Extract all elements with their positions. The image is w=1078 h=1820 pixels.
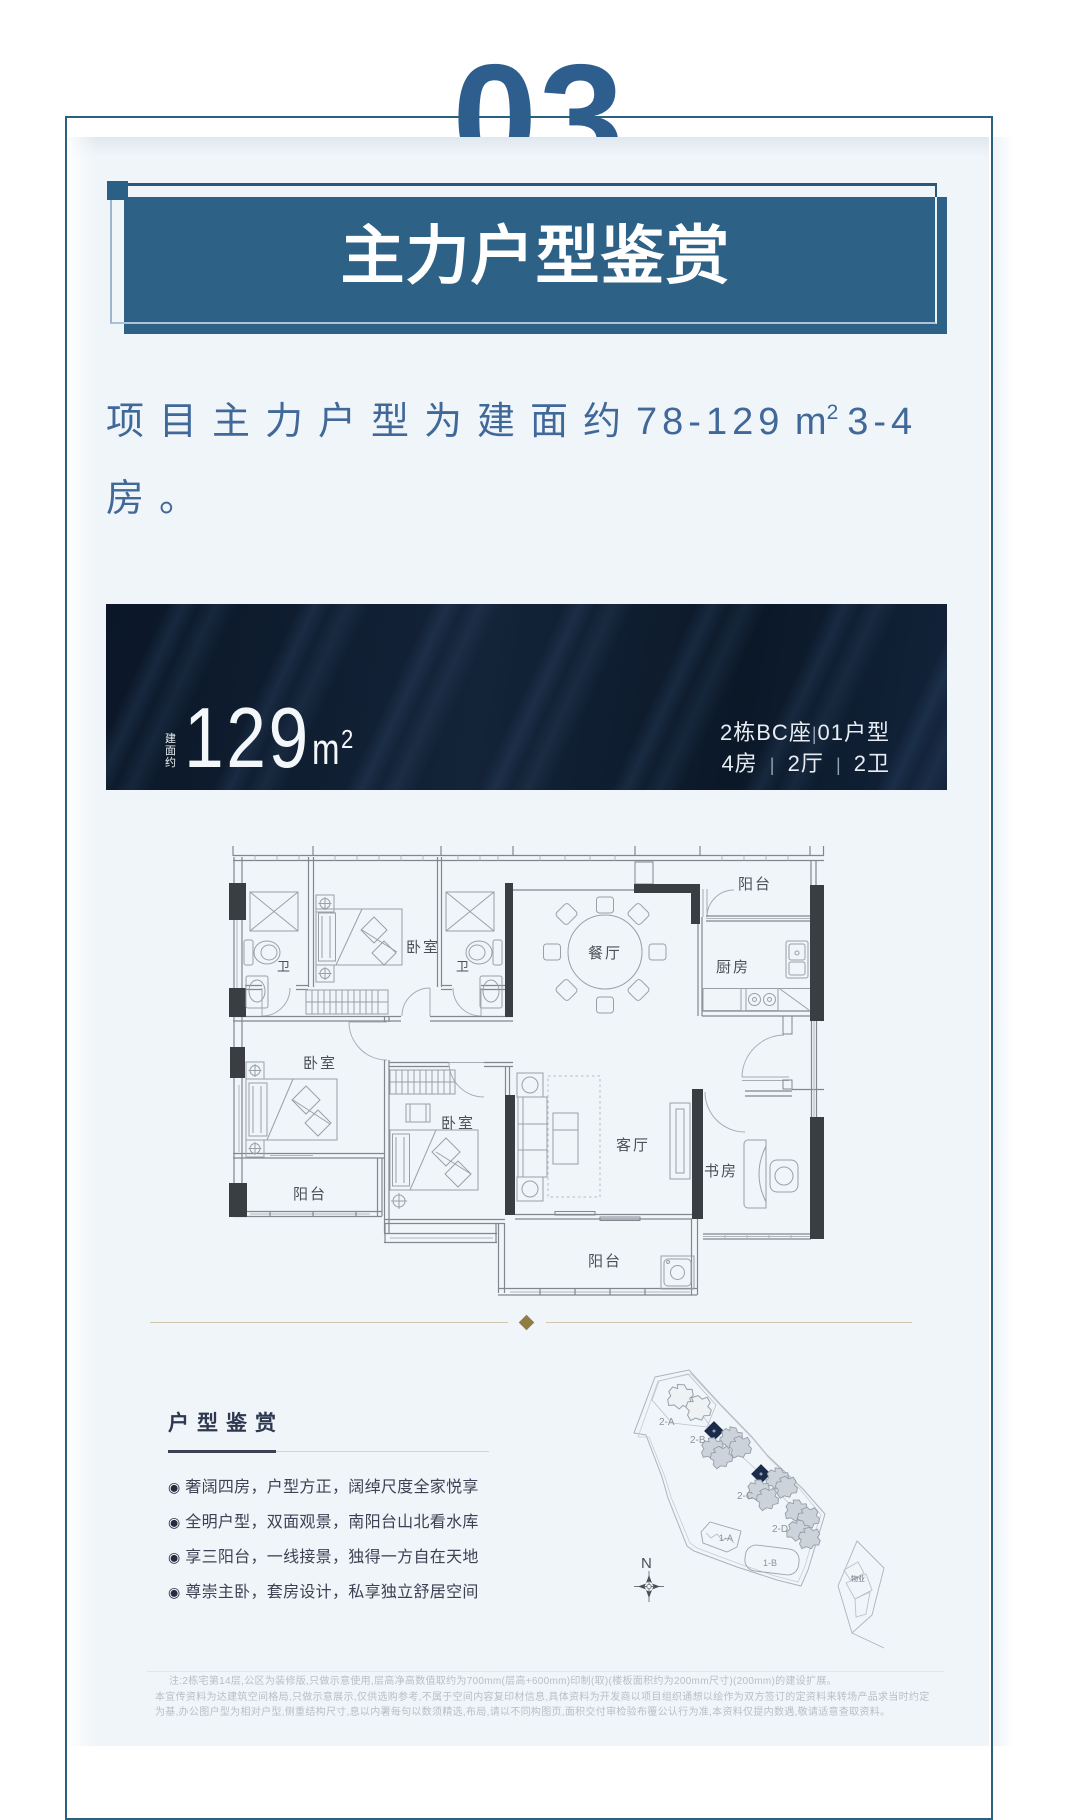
svg-text:客厅: 客厅 bbox=[616, 1137, 650, 1154]
svg-text:阳台: 阳台 bbox=[588, 1253, 622, 1270]
svg-text:N: N bbox=[641, 1555, 652, 1572]
svg-text:卫: 卫 bbox=[456, 959, 471, 974]
svg-text:阳台: 阳台 bbox=[738, 876, 772, 893]
svg-text:厨房: 厨房 bbox=[716, 959, 750, 976]
svg-text:卫: 卫 bbox=[277, 959, 292, 974]
svg-text:物业: 物业 bbox=[851, 1574, 865, 1583]
svg-text:2-C: 2-C bbox=[737, 1491, 753, 1502]
svg-text:卧室: 卧室 bbox=[441, 1115, 475, 1132]
svg-text:书房: 书房 bbox=[704, 1163, 738, 1180]
svg-text:1-B: 1-B bbox=[763, 1558, 777, 1568]
svg-text:1-A: 1-A bbox=[719, 1533, 733, 1543]
svg-text:阳台: 阳台 bbox=[293, 1186, 327, 1203]
svg-text:餐厅: 餐厅 bbox=[588, 945, 622, 962]
svg-text:2-A: 2-A bbox=[659, 1417, 675, 1428]
svg-text:卧室: 卧室 bbox=[303, 1055, 337, 1072]
svg-text:卧室: 卧室 bbox=[406, 939, 440, 956]
svg-text:2-B: 2-B bbox=[690, 1435, 706, 1446]
svg-text:2-D: 2-D bbox=[772, 1524, 788, 1535]
